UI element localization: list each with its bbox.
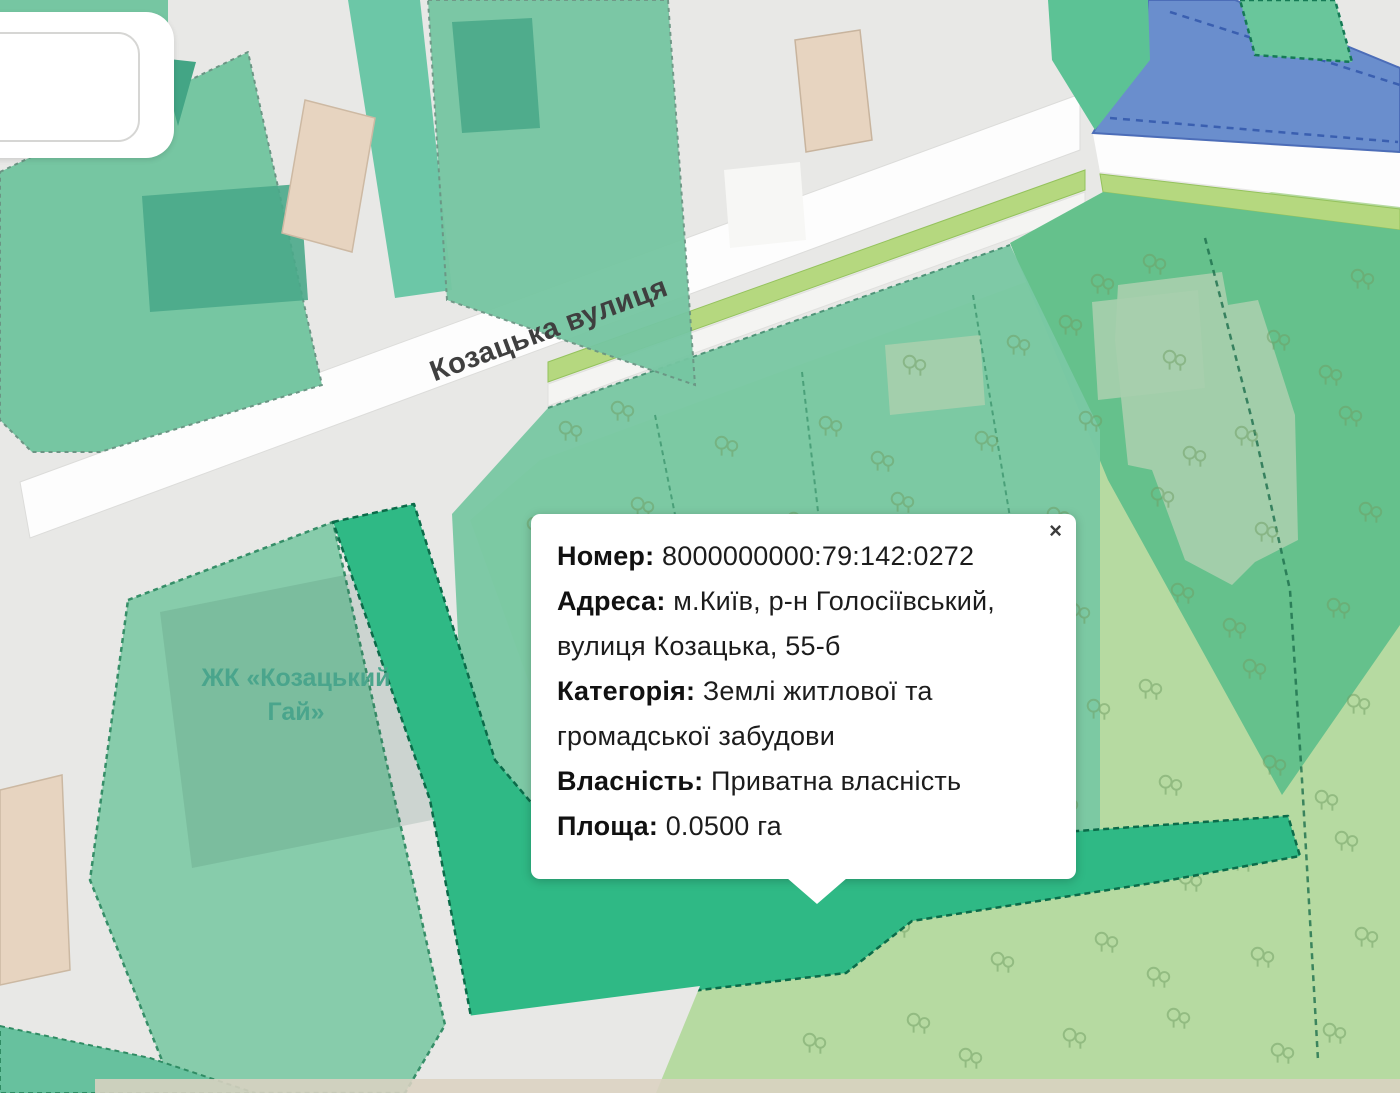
popup-field-ownership: Власність: Приватна власність bbox=[557, 759, 1052, 804]
parcel-info-popup: × Номер: 8000000000:79:142:0272 Адреса: … bbox=[531, 514, 1076, 879]
popup-field-number: Номер: 8000000000:79:142:0272 bbox=[557, 534, 1052, 579]
building-beige-top bbox=[795, 30, 872, 152]
complex-label-line2: Гай» bbox=[267, 698, 324, 726]
building-top-middle bbox=[452, 18, 540, 133]
popup-tail bbox=[787, 878, 847, 904]
map-control-button[interactable] bbox=[0, 32, 140, 142]
complex-label-line1: ЖК «Козацький bbox=[201, 664, 391, 692]
building-footprint-small-2 bbox=[1092, 290, 1205, 400]
driveway bbox=[724, 162, 806, 248]
building-beige-bottom-left bbox=[0, 775, 70, 985]
corner-green-parcel[interactable] bbox=[1240, 0, 1352, 62]
cadastral-map-viewer: Козацька вулиця ЖК «Козацький Гай» × Ном… bbox=[0, 0, 1400, 1093]
bottom-beige-strip bbox=[95, 1079, 1400, 1093]
close-icon[interactable]: × bbox=[1049, 520, 1062, 542]
building-footprint-small bbox=[885, 335, 985, 415]
building-top-left bbox=[142, 184, 308, 312]
popup-field-area: Площа: 0.0500 га bbox=[557, 804, 1052, 849]
popup-field-address: Адреса: м.Київ, р-н Голосіївський, вулиц… bbox=[557, 579, 1052, 669]
map-control-panel bbox=[0, 12, 174, 158]
popup-field-category: Категорія: Землі житлової та громадської… bbox=[557, 669, 1052, 759]
